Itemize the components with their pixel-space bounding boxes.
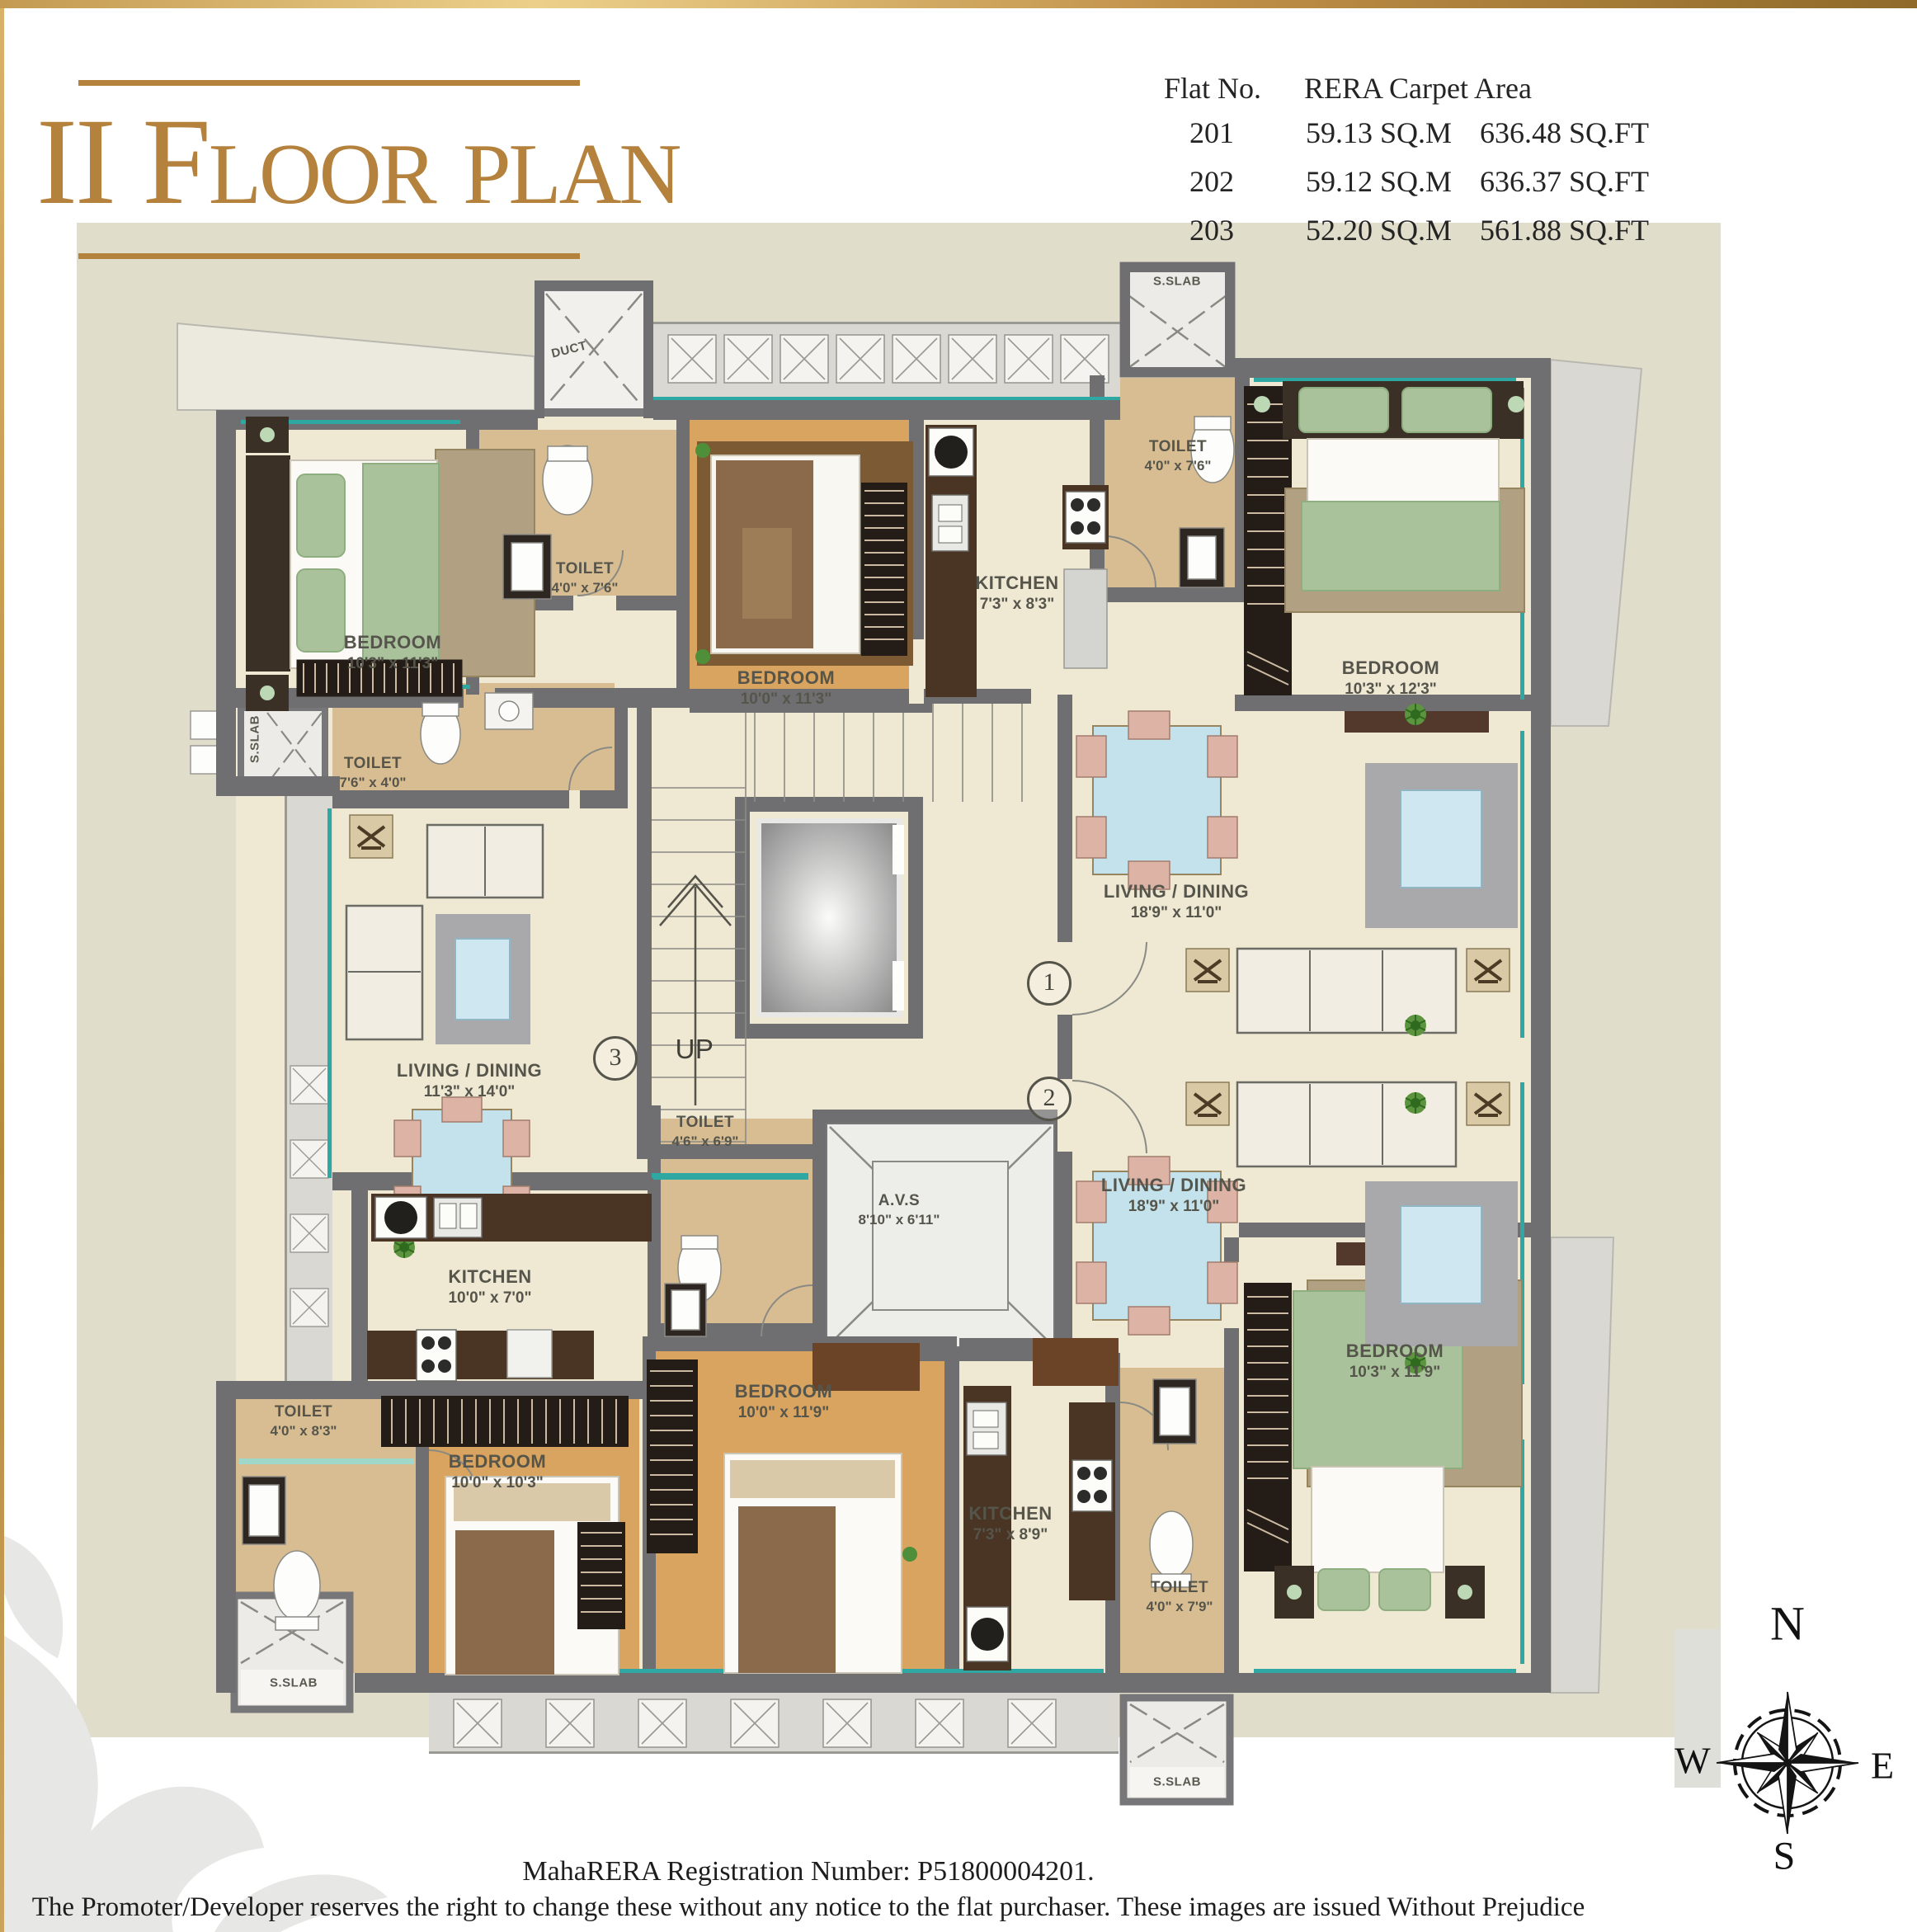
top-gold-bar [0, 0, 1917, 8]
avs-shaft [826, 1123, 1055, 1348]
table-cell: 203 [1172, 213, 1251, 247]
table-cell: 52.20 SQ.M [1306, 213, 1452, 247]
slab-box-top-right [1123, 266, 1232, 374]
footer-disclaimer: The Promoter/Developer reserves the righ… [25, 1892, 1592, 1923]
bed-top-middle [695, 441, 913, 666]
table-cell: 636.48 SQ.FT [1480, 115, 1649, 150]
table-cell: 636.37 SQ.FT [1480, 164, 1649, 199]
footer-registration: MahaRERA Registration Number: P518000042… [25, 1856, 1592, 1887]
compass-west-label: W [1674, 1739, 1710, 1783]
slab-box-bottom-middle [1123, 1698, 1230, 1802]
compass-south-label: S [1773, 1834, 1796, 1879]
bottom-balcony-strip [429, 1693, 1119, 1754]
bed-top-left [246, 417, 535, 711]
compass-north-label: N [1770, 1596, 1805, 1652]
top-balcony-strip [653, 322, 1120, 400]
compass-rose [1717, 1692, 1858, 1834]
compass-east-label: E [1871, 1744, 1894, 1788]
lift-shaft [742, 804, 916, 1031]
left-balcony-strip [285, 794, 332, 1382]
floor-plan-page: { "header": { "title": "II Floor plan" }… [0, 0, 1917, 1932]
table-header-area: RERA Carpet Area [1304, 71, 1532, 106]
page-title: II Floor plan [36, 96, 614, 244]
table-cell: 202 [1172, 164, 1251, 199]
table-cell: 561.88 SQ.FT [1480, 213, 1649, 247]
table-cell: 59.13 SQ.M [1306, 115, 1452, 150]
title-rule-bottom [78, 253, 580, 259]
duct-box [540, 287, 648, 412]
table-header-flat: Flat No. [1164, 71, 1261, 106]
table-cell: 201 [1172, 115, 1251, 150]
table-cell: 59.12 SQ.M [1306, 164, 1452, 199]
title-rule-top [78, 80, 580, 86]
floor-plan-svg [0, 0, 1917, 1932]
left-gold-line [0, 8, 4, 1932]
